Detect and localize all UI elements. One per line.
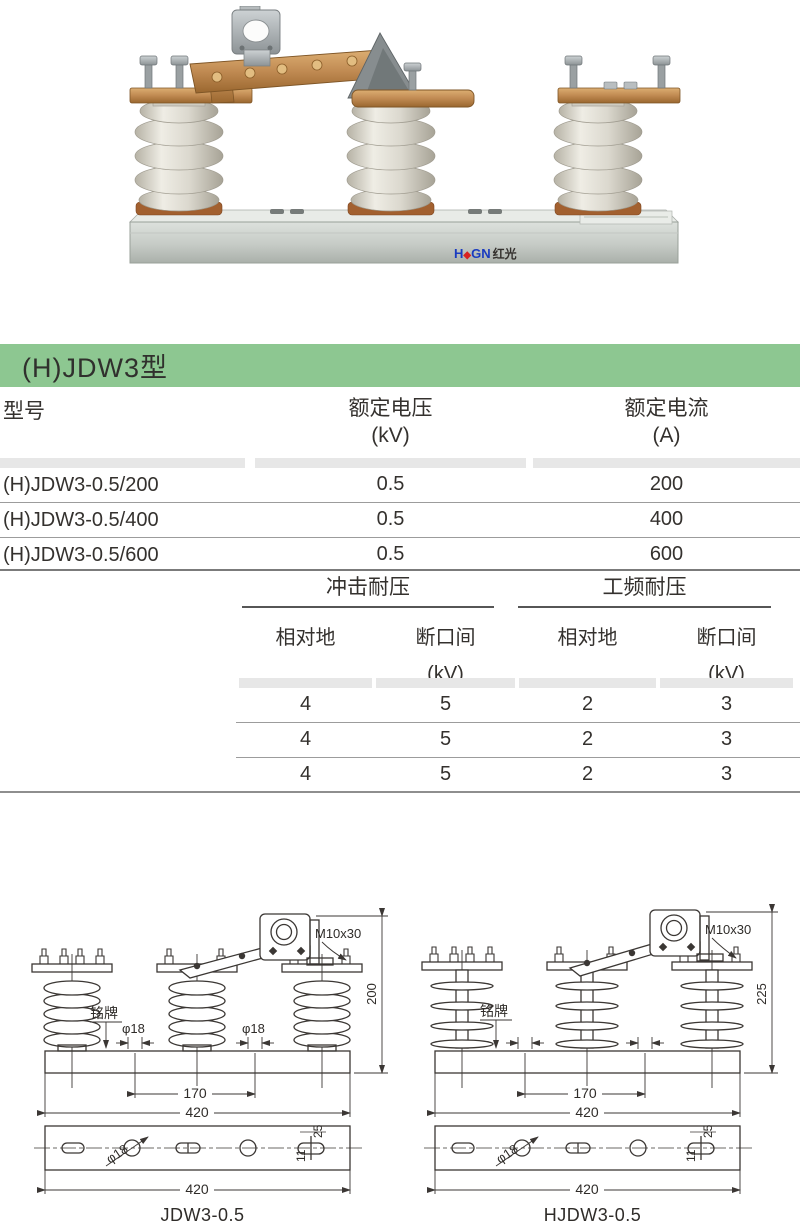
dim-inner-span-label: 170 bbox=[183, 1085, 207, 1101]
dim-outer-span-label: 420 bbox=[575, 1104, 599, 1120]
group-impulse: 冲击耐压 bbox=[242, 571, 494, 608]
drawn-mechanism bbox=[180, 914, 333, 978]
table-strip-segment bbox=[255, 458, 526, 468]
table-strip-segment bbox=[239, 678, 372, 688]
value-cell: 2 bbox=[517, 723, 658, 758]
table-strip-segment bbox=[519, 678, 656, 688]
value-cell: 4 bbox=[237, 688, 374, 723]
value-cell: 4 bbox=[237, 723, 374, 758]
label-nameplate: 铭牌 bbox=[90, 1005, 118, 1021]
col-header-current: 额定电流 (A) bbox=[533, 387, 800, 458]
product-photo: H◆GN红光 bbox=[112, 6, 697, 274]
current-cell: 400 bbox=[533, 503, 800, 537]
model-cell: (H)JDW3-0.5/400 bbox=[0, 503, 245, 537]
group-power-freq: 工频耐压 bbox=[518, 571, 771, 608]
spec-table-header: 型号 额定电压 (kV) 额定电流 (A) bbox=[0, 387, 800, 458]
insulator-left bbox=[135, 94, 223, 215]
hole-mark bbox=[506, 1037, 544, 1049]
subcol-to-ground-2: 相对地 bbox=[517, 608, 658, 688]
spec-row-1: (H)JDW3-0.5/200 0.5 200 bbox=[0, 468, 800, 503]
drawn-insulator bbox=[282, 949, 362, 1051]
drawing-right-svg: M10x30 225 铭牌 170 420 bbox=[400, 898, 785, 1200]
section-title: (H)JDW3型 bbox=[22, 346, 168, 385]
voltage-cell: 0.5 bbox=[255, 468, 526, 502]
value-cell: 4 bbox=[237, 758, 374, 793]
product-photo-svg: H◆GN红光 bbox=[112, 6, 697, 274]
voltage-cell: 0.5 bbox=[255, 503, 526, 537]
current-cell: 600 bbox=[533, 538, 800, 572]
terminal-pad-right bbox=[558, 56, 680, 103]
dim-bottom-width-label: 420 bbox=[575, 1181, 599, 1197]
model-cell: (H)JDW3-0.5/200 bbox=[0, 468, 245, 502]
label-slot-offset: 11 bbox=[684, 1149, 698, 1162]
value-cell: 5 bbox=[374, 758, 517, 793]
label-nameplate: 铭牌 bbox=[480, 1003, 508, 1019]
col-header-model: 型号 bbox=[0, 387, 245, 458]
table-strip-segment bbox=[0, 458, 245, 468]
base-plate bbox=[130, 209, 678, 263]
bottom-view: φ18 25 11 420 bbox=[34, 1124, 362, 1197]
hole-mark bbox=[626, 1037, 664, 1049]
drawn-insulator bbox=[672, 947, 752, 1048]
dim-height-label: 200 bbox=[364, 983, 379, 1005]
value-cell: 3 bbox=[658, 758, 795, 793]
drawing-left: M10x30 200 铭牌 φ18 φ18 170 bbox=[10, 898, 395, 1200]
label-slot-offset: 11 bbox=[294, 1149, 308, 1162]
dim-outer-span-label: 420 bbox=[185, 1104, 209, 1120]
withstand-table: 冲击耐压 工频耐压 相对地 断口间 (kV) 相对地 断口间 (kV) 4 5 … bbox=[0, 571, 800, 793]
hook-plate bbox=[232, 6, 280, 66]
value-cell: 5 bbox=[374, 688, 517, 723]
dim-height-label: 225 bbox=[754, 983, 769, 1005]
value-cell: 3 bbox=[658, 723, 795, 758]
label-bolt-spec: M10x30 bbox=[315, 926, 361, 941]
front-view: M10x30 225 铭牌 170 420 bbox=[422, 910, 778, 1120]
dim-bottom-width-label: 420 bbox=[185, 1181, 209, 1197]
spec-row-2: (H)JDW3-0.5/400 0.5 400 bbox=[0, 503, 800, 538]
drawing-left-caption: JDW3-0.5 bbox=[10, 1205, 395, 1226]
label-slot-width: 25 bbox=[701, 1124, 715, 1138]
insulator-middle bbox=[347, 94, 435, 215]
table-strip-segment bbox=[376, 678, 515, 688]
drawn-mechanism bbox=[570, 910, 723, 976]
spec-table-strip bbox=[0, 458, 800, 468]
label-bolt-spec: M10x30 bbox=[705, 922, 751, 937]
withstand-strip bbox=[0, 678, 800, 688]
label-slot-width: 25 bbox=[311, 1124, 325, 1138]
bottom-view: φ18 25 11 420 bbox=[424, 1124, 752, 1197]
value-cell: 3 bbox=[658, 688, 795, 723]
subcol-across-break-2: 断口间 (kV) bbox=[658, 608, 795, 688]
drawn-insulator bbox=[422, 947, 502, 1048]
value-cell: 5 bbox=[374, 723, 517, 758]
withstand-subheader: 相对地 断口间 (kV) 相对地 断口间 (kV) bbox=[0, 608, 800, 678]
drawing-right: M10x30 225 铭牌 170 420 bbox=[400, 898, 785, 1200]
section-header: (H)JDW3型 bbox=[0, 344, 800, 387]
current-cell: 200 bbox=[533, 468, 800, 502]
col-header-voltage: 额定电压 (kV) bbox=[255, 387, 526, 458]
label-hole-dia-1: φ18 bbox=[122, 1021, 145, 1036]
withstand-row-1: 4 5 2 3 bbox=[0, 688, 800, 723]
insulator-right bbox=[554, 94, 642, 215]
dim-inner-span-label: 170 bbox=[573, 1085, 597, 1101]
withstand-row-2: 4 5 2 3 bbox=[0, 723, 800, 758]
model-cell: (H)JDW3-0.5/600 bbox=[0, 538, 245, 572]
hinge-bracket bbox=[348, 33, 474, 107]
drawn-insulator bbox=[32, 949, 112, 1051]
drawing-right-caption: HJDW3-0.5 bbox=[400, 1205, 785, 1226]
spec-row-3: (H)JDW3-0.5/600 0.5 600 bbox=[0, 538, 800, 571]
table-strip-segment bbox=[660, 678, 793, 688]
value-cell: 2 bbox=[517, 688, 658, 723]
hole-mark bbox=[116, 1037, 154, 1049]
subcol-across-break-1: 断口间 (kV) bbox=[374, 608, 517, 688]
value-cell: 2 bbox=[517, 758, 658, 793]
table-strip-segment bbox=[533, 458, 800, 468]
hole-mark bbox=[236, 1037, 274, 1049]
withstand-row-3: 4 5 2 3 bbox=[0, 758, 800, 793]
label-bottom-hole-dia: φ18 bbox=[493, 1141, 520, 1166]
label-bottom-hole-dia: φ18 bbox=[103, 1141, 130, 1166]
withstand-group-header: 冲击耐压 工频耐压 bbox=[0, 571, 800, 608]
label-hole-dia-2: φ18 bbox=[242, 1021, 265, 1036]
subcol-to-ground-1: 相对地 bbox=[237, 608, 374, 688]
front-view: M10x30 200 铭牌 φ18 φ18 170 bbox=[32, 914, 388, 1120]
drawing-left-svg: M10x30 200 铭牌 φ18 φ18 170 bbox=[10, 898, 395, 1200]
spec-table: 型号 额定电压 (kV) 额定电流 (A) (H)JDW3-0.5/200 0.… bbox=[0, 387, 800, 571]
voltage-cell: 0.5 bbox=[255, 538, 526, 572]
